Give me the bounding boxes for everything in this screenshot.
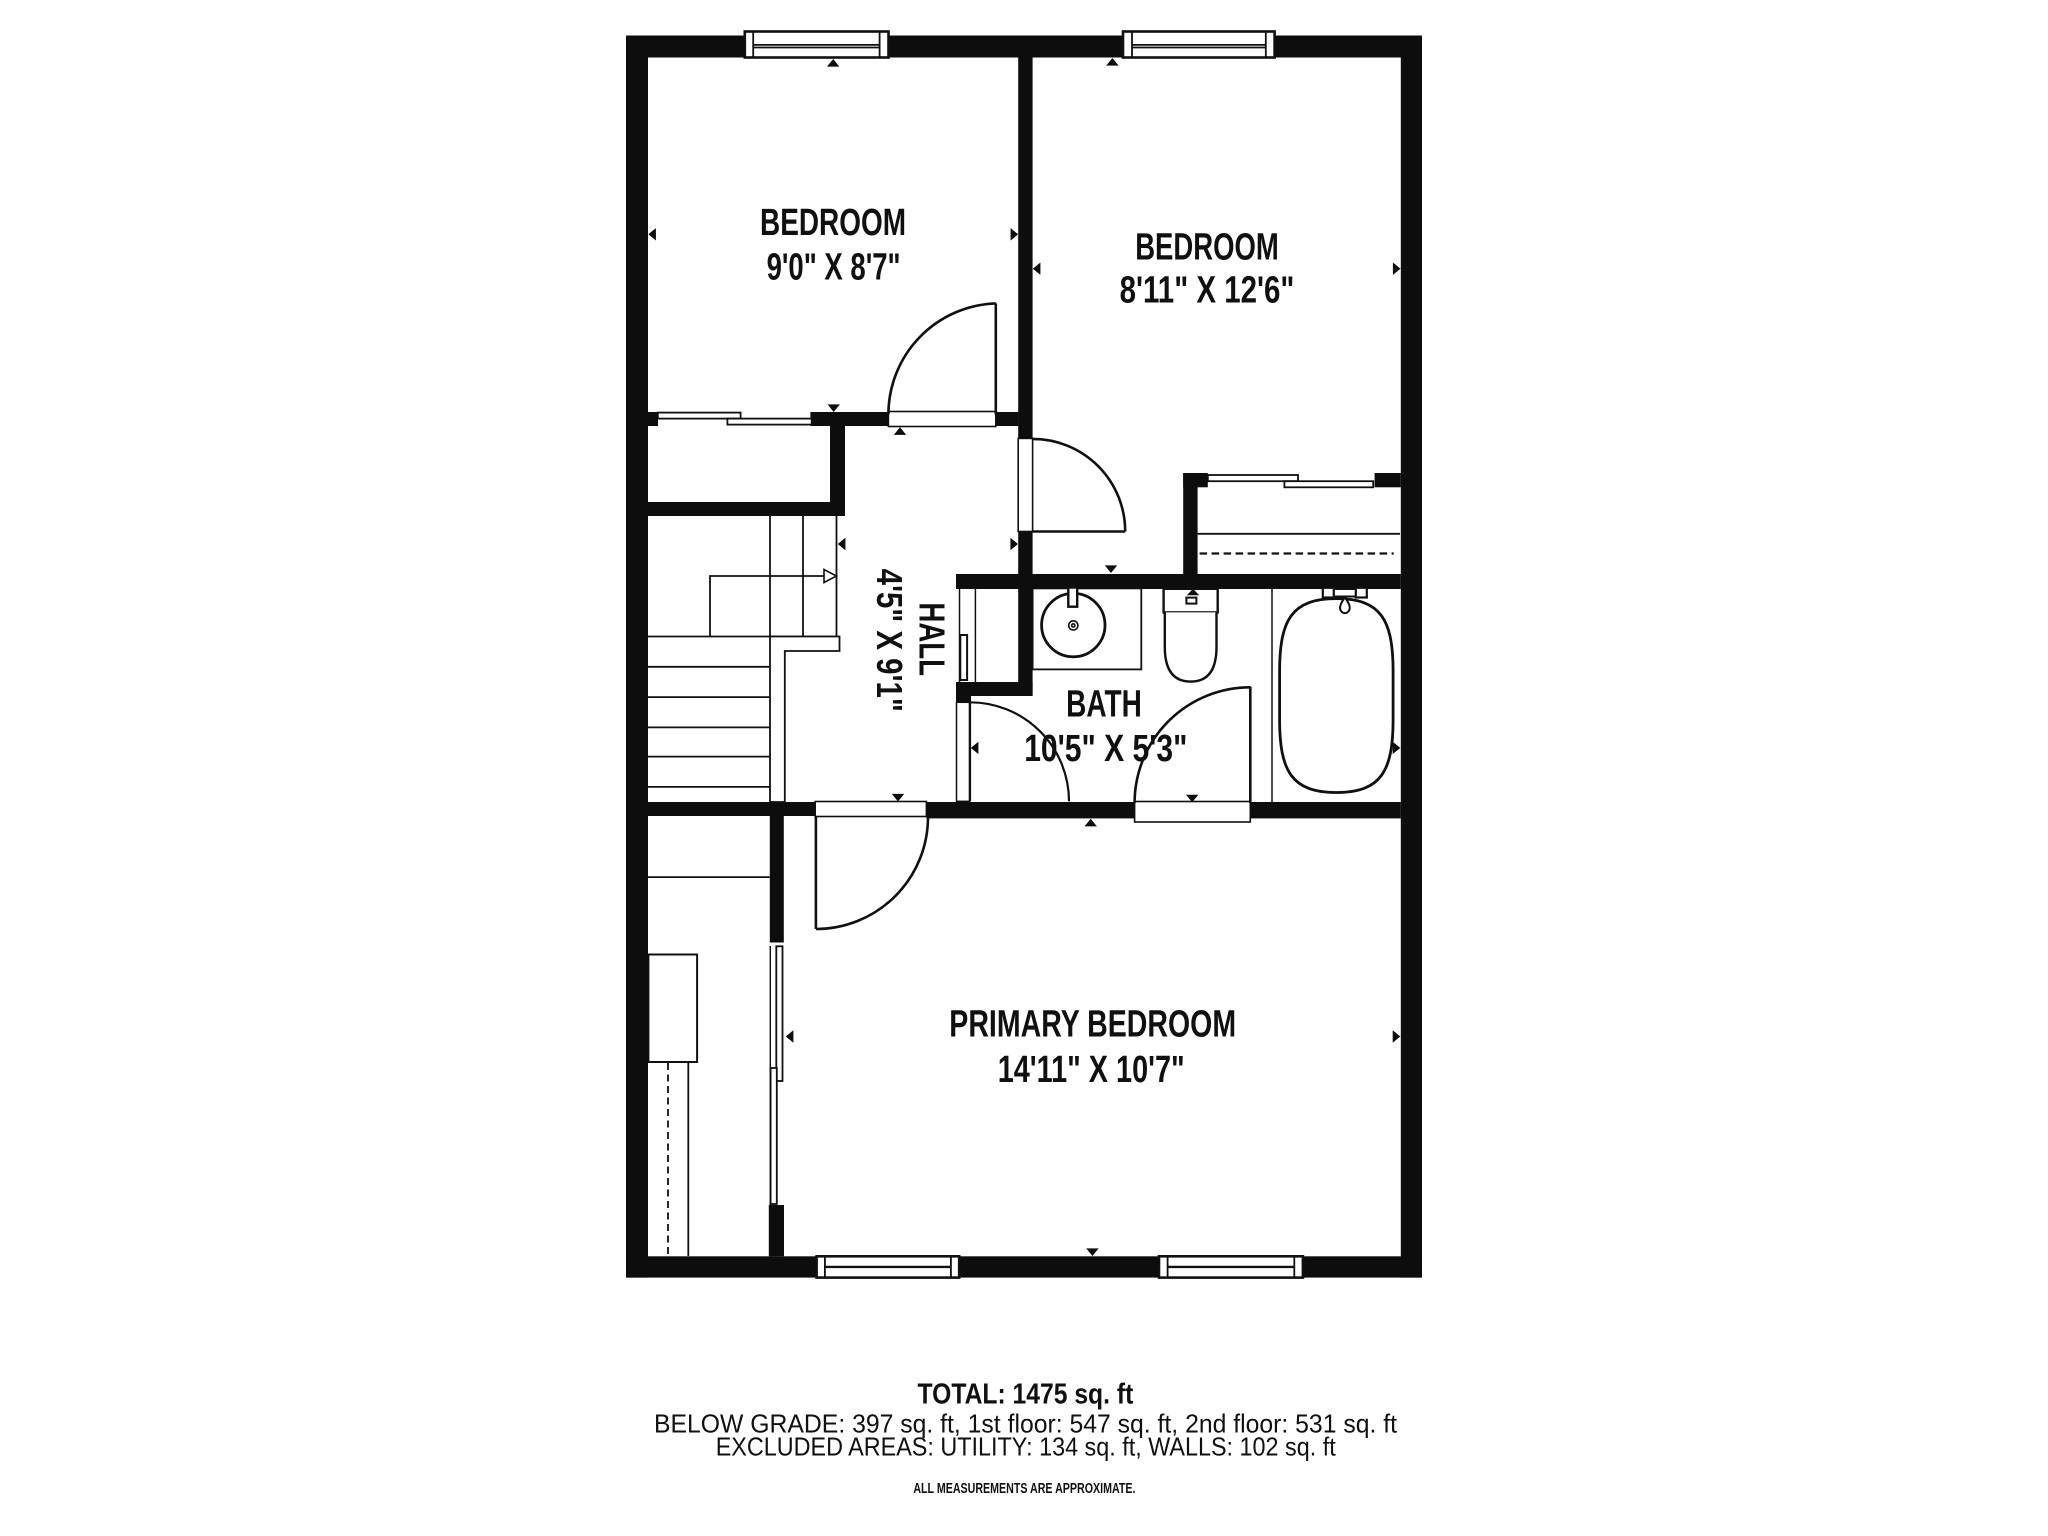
svg-text:4'5" X 9'1": 4'5" X 9'1" bbox=[869, 569, 910, 712]
svg-text:BEDROOM: BEDROOM bbox=[760, 202, 906, 244]
svg-text:HALL: HALL bbox=[912, 602, 953, 676]
svg-text:BATH: BATH bbox=[1066, 684, 1142, 726]
svg-text:8'11" X 12'6": 8'11" X 12'6" bbox=[1120, 269, 1295, 311]
svg-text:EXCLUDED AREAS: UTILITY: 134 s: EXCLUDED AREAS: UTILITY: 134 sq. ft, WAL… bbox=[716, 1432, 1337, 1462]
svg-text:TOTAL: 1475 sq. ft: TOTAL: 1475 sq. ft bbox=[918, 1379, 1134, 1411]
svg-text:9'0" X 8'7": 9'0" X 8'7" bbox=[767, 247, 901, 289]
svg-text:PRIMARY BEDROOM: PRIMARY BEDROOM bbox=[949, 1004, 1236, 1046]
svg-text:10'5" X 5'3": 10'5" X 5'3" bbox=[1024, 728, 1187, 770]
svg-text:14'11" X 10'7": 14'11" X 10'7" bbox=[998, 1049, 1185, 1091]
svg-text:ALL MEASUREMENTS ARE APPROXIMA: ALL MEASUREMENTS ARE APPROXIMATE. bbox=[913, 1481, 1135, 1497]
svg-text:BEDROOM: BEDROOM bbox=[1135, 227, 1279, 269]
